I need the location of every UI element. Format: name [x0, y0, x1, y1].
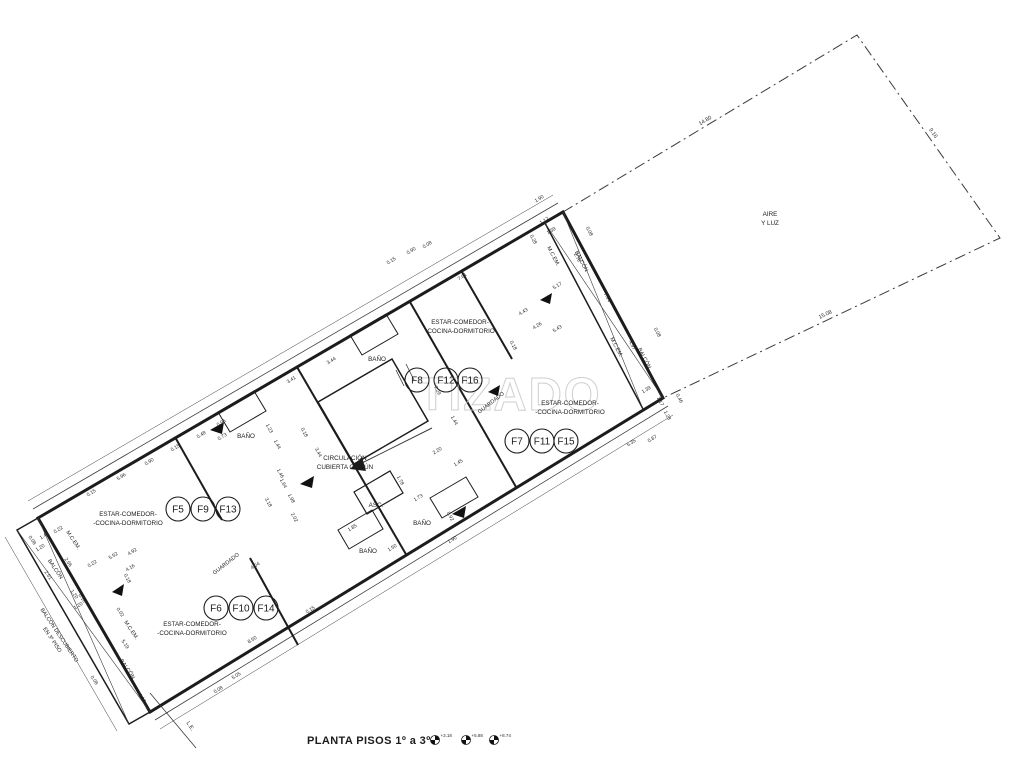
- level-value: +8.74: [500, 733, 512, 738]
- room-label-unit-left: ESTAR-COMEDOR--COCINA-DORMITORIO: [93, 511, 163, 527]
- unit-badge-f11: F11: [530, 429, 554, 453]
- unit-label: F15: [557, 437, 575, 448]
- unit-badge-f5: F5: [166, 497, 190, 521]
- dimension-label: 2.61: [43, 570, 54, 582]
- dimension-label: 8.50: [247, 635, 259, 645]
- room-label-bath-top: BAÑO: [368, 354, 386, 363]
- dimension-label: 1.20: [35, 543, 47, 553]
- dimension-label: 5.17: [552, 281, 564, 291]
- unit-badge-f15: F15: [554, 429, 578, 453]
- wall-labels: BALCÓN DESCUBIERTOEN 3º PISOBALCÓNBALCÓN…: [31, 246, 652, 733]
- unit-label: F9: [197, 505, 209, 516]
- dimension-label: 3.41: [286, 375, 298, 385]
- dimension-label: 0.02: [115, 607, 126, 619]
- unit-badge-f9: F9: [191, 497, 215, 521]
- dimension-label: 5.19: [120, 639, 131, 651]
- dimension-label: 0.73: [217, 432, 229, 442]
- dimension-label: 4.26: [532, 321, 544, 331]
- level-symbol-quadrant: [490, 740, 495, 745]
- dimension-label: 1.64: [278, 478, 288, 490]
- room-label-bath-right: BAÑO: [413, 518, 431, 527]
- level-marker: +5.88: [462, 733, 484, 745]
- lot-dimension-label: 14.80: [698, 115, 713, 127]
- wall-label: BALCÓN: [118, 658, 136, 681]
- wall-label: M.C.EM.: [64, 530, 81, 551]
- level-symbol-quadrant: [431, 740, 436, 745]
- dimension-label: 4.16: [125, 563, 137, 573]
- dimension-label: 1.28: [662, 410, 672, 422]
- room-label-bath-left: BAÑO: [237, 431, 255, 440]
- unit-label: F14: [257, 604, 275, 615]
- wall-label: BALCÓN: [573, 250, 590, 273]
- dimension-label: 1.45: [453, 458, 465, 468]
- unit-label: F7: [511, 437, 523, 448]
- unit-label: F16: [461, 376, 479, 387]
- unit-badge-f7: F7: [505, 429, 529, 453]
- wall-label: BALCÓN DESCUBIERTOEN 3º PISO: [31, 607, 80, 669]
- level-symbol-quadrant: [462, 740, 467, 745]
- room-labels: AIREY LUZESTAR-COMEDOR--COCINA-DORMITORI…: [93, 211, 779, 637]
- room-label-air-light: AIREY LUZ: [761, 211, 779, 227]
- floor-plan-page: TIZADO 14.809.1615.08 0.155.960.900.150.…: [0, 0, 1013, 778]
- room-label-bath-center: BAÑO: [359, 546, 377, 555]
- dimension-label: 0.28: [528, 234, 538, 246]
- dimension-label: 5.35: [626, 438, 638, 448]
- lot-dimension-labels: 14.809.1615.08: [698, 115, 938, 321]
- dimension-label: 4.92: [127, 547, 139, 557]
- unit-badge-f13: F13: [216, 497, 240, 521]
- dimension-label: 1.44: [272, 439, 282, 451]
- wall-label: GUARDADO: [212, 552, 241, 577]
- unit-label: F13: [219, 505, 237, 516]
- unit-badge-f6: F6: [204, 596, 228, 620]
- level-marker: +3.18: [431, 733, 453, 745]
- dimension-label: 1.50: [387, 543, 399, 553]
- dimension-label: 0.48: [196, 430, 208, 440]
- dimension-label: 0.92: [445, 511, 455, 523]
- dimension-label: 1.39: [641, 385, 653, 395]
- level-value: +5.88: [472, 733, 484, 738]
- wall-label: BALCÓN: [636, 347, 653, 370]
- dimension-label: 0.46: [674, 393, 684, 405]
- dimension-label: 0.90: [144, 457, 156, 467]
- dimension-label: 0.90: [406, 246, 418, 256]
- level-symbol-quadrant: [435, 736, 440, 741]
- unit-badge-f14: F14: [254, 596, 278, 620]
- dimension-label: 0.18: [122, 573, 132, 585]
- dimension-label: 1.98: [286, 493, 296, 505]
- dimension-label: 0.18: [299, 427, 309, 439]
- dimension-label: 0.08: [27, 535, 38, 547]
- level-value: +3.18: [441, 733, 453, 738]
- dimension-label: 1.40: [39, 531, 51, 541]
- room-label-unit-top: ESTAR-COMEDOR--COCINA-DORMITORIO: [425, 319, 495, 335]
- dimension-label: 0.22: [53, 525, 65, 535]
- dimension-label: 0.22: [87, 559, 99, 569]
- level-symbol-quadrant: [494, 736, 499, 741]
- title-block: PLANTA PISOS 1º a 3º +3.18+5.88+8.74: [307, 733, 511, 747]
- level-marker: +8.74: [490, 733, 512, 745]
- dimension-label: 2.20: [432, 446, 444, 456]
- level-symbol-quadrant: [466, 736, 471, 741]
- dimension-label: 1.23: [264, 423, 274, 435]
- unit-label: F10: [232, 604, 250, 615]
- room-label-elevator: ASC.: [369, 502, 384, 509]
- dimension-label: 3.18: [263, 497, 273, 509]
- dimension-label: 0.08: [213, 685, 225, 695]
- dimension-label: 1.85: [347, 523, 359, 533]
- unit-label: F5: [172, 505, 184, 516]
- dimension-label: 1.78: [395, 475, 405, 487]
- room-label-unit-bottom: ESTAR-COMEDOR--COCINA-DORMITORIO: [157, 621, 227, 637]
- level-markers: +3.18+5.88+8.74: [431, 733, 512, 745]
- dimension-label: 5.96: [116, 472, 128, 482]
- dimension-label: 1.90: [447, 535, 459, 545]
- unit-label: F6: [210, 604, 222, 615]
- dimension-label: 3.44: [326, 356, 338, 366]
- dimension-label: 0.18: [508, 340, 518, 352]
- dimension-label: 2.02: [289, 512, 299, 524]
- lot-dimension-label: 15.08: [818, 309, 833, 320]
- dimension-label: 4.43: [518, 307, 530, 317]
- unit-label: F11: [534, 437, 551, 448]
- dimension-label: 1.73: [413, 493, 425, 503]
- dimension-label: 0.15: [386, 256, 398, 266]
- dimension-label: 0.87: [647, 434, 659, 444]
- room-label-circulation: CIRCULACIÓNCUBIERTA COMÚN: [317, 453, 374, 471]
- dimension-label: 5.43: [552, 324, 564, 334]
- dimension-label: 0.08: [584, 226, 594, 238]
- floor-plan-drawing: TIZADO 14.809.1615.08 0.155.960.900.150.…: [0, 0, 1013, 778]
- dimension-label: 3.44: [313, 447, 323, 459]
- unit-label: F12: [437, 376, 455, 387]
- dimension-label: 0.08: [652, 327, 662, 339]
- dimension-label: 5.52: [108, 551, 120, 561]
- plan-title: PLANTA PISOS 1º a 3º: [307, 735, 431, 747]
- unit-badge-f10: F10: [229, 596, 253, 620]
- wall-label: L.E.: [185, 721, 196, 733]
- dimension-label: 1.17: [539, 216, 551, 226]
- unit-label: F8: [411, 376, 423, 387]
- dimension-label: 0.08: [422, 240, 434, 250]
